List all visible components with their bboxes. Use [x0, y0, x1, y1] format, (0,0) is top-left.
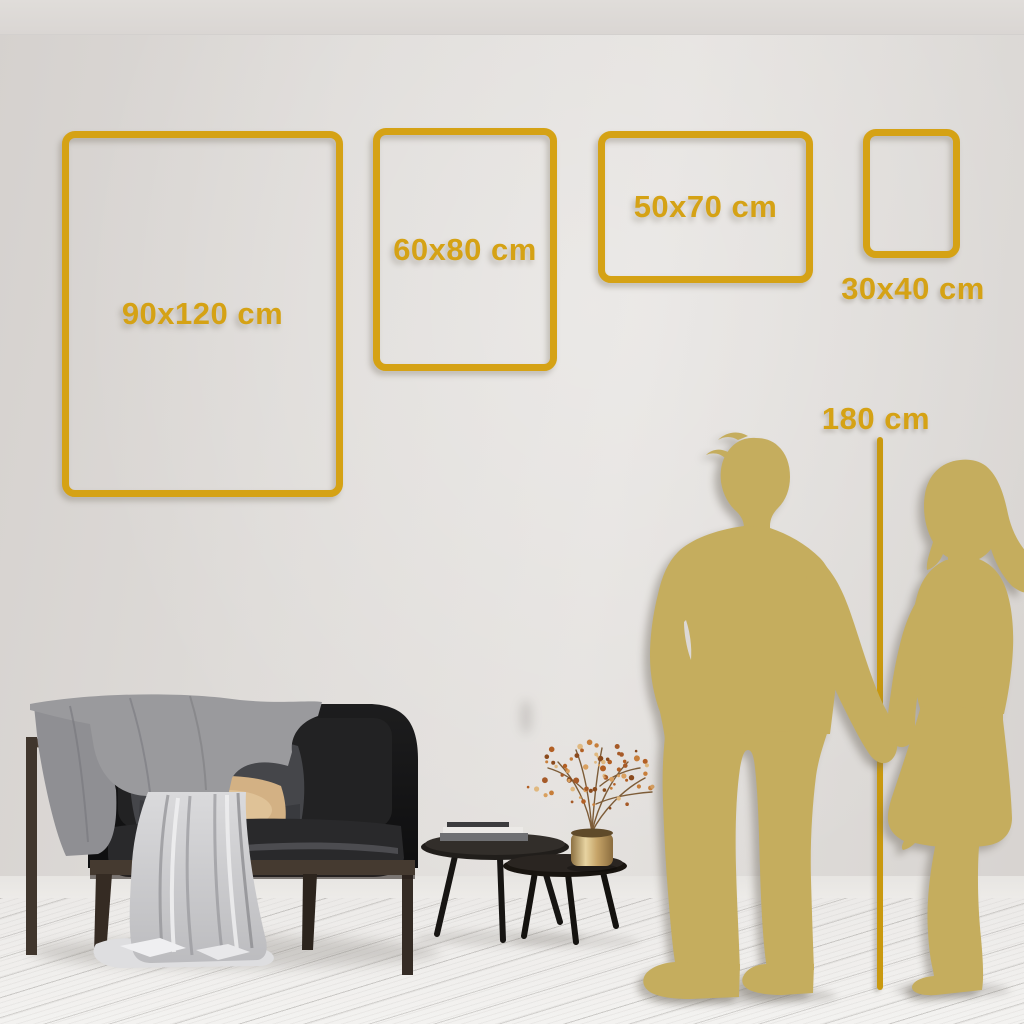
couple-silhouette: [0, 0, 1024, 1024]
woman-silhouette: [888, 460, 1024, 996]
size-guide-scene: 90x120 cm 60x80 cm 50x70 cm 30x40 cm 180…: [0, 0, 1024, 1024]
man-silhouette: [643, 433, 897, 999]
